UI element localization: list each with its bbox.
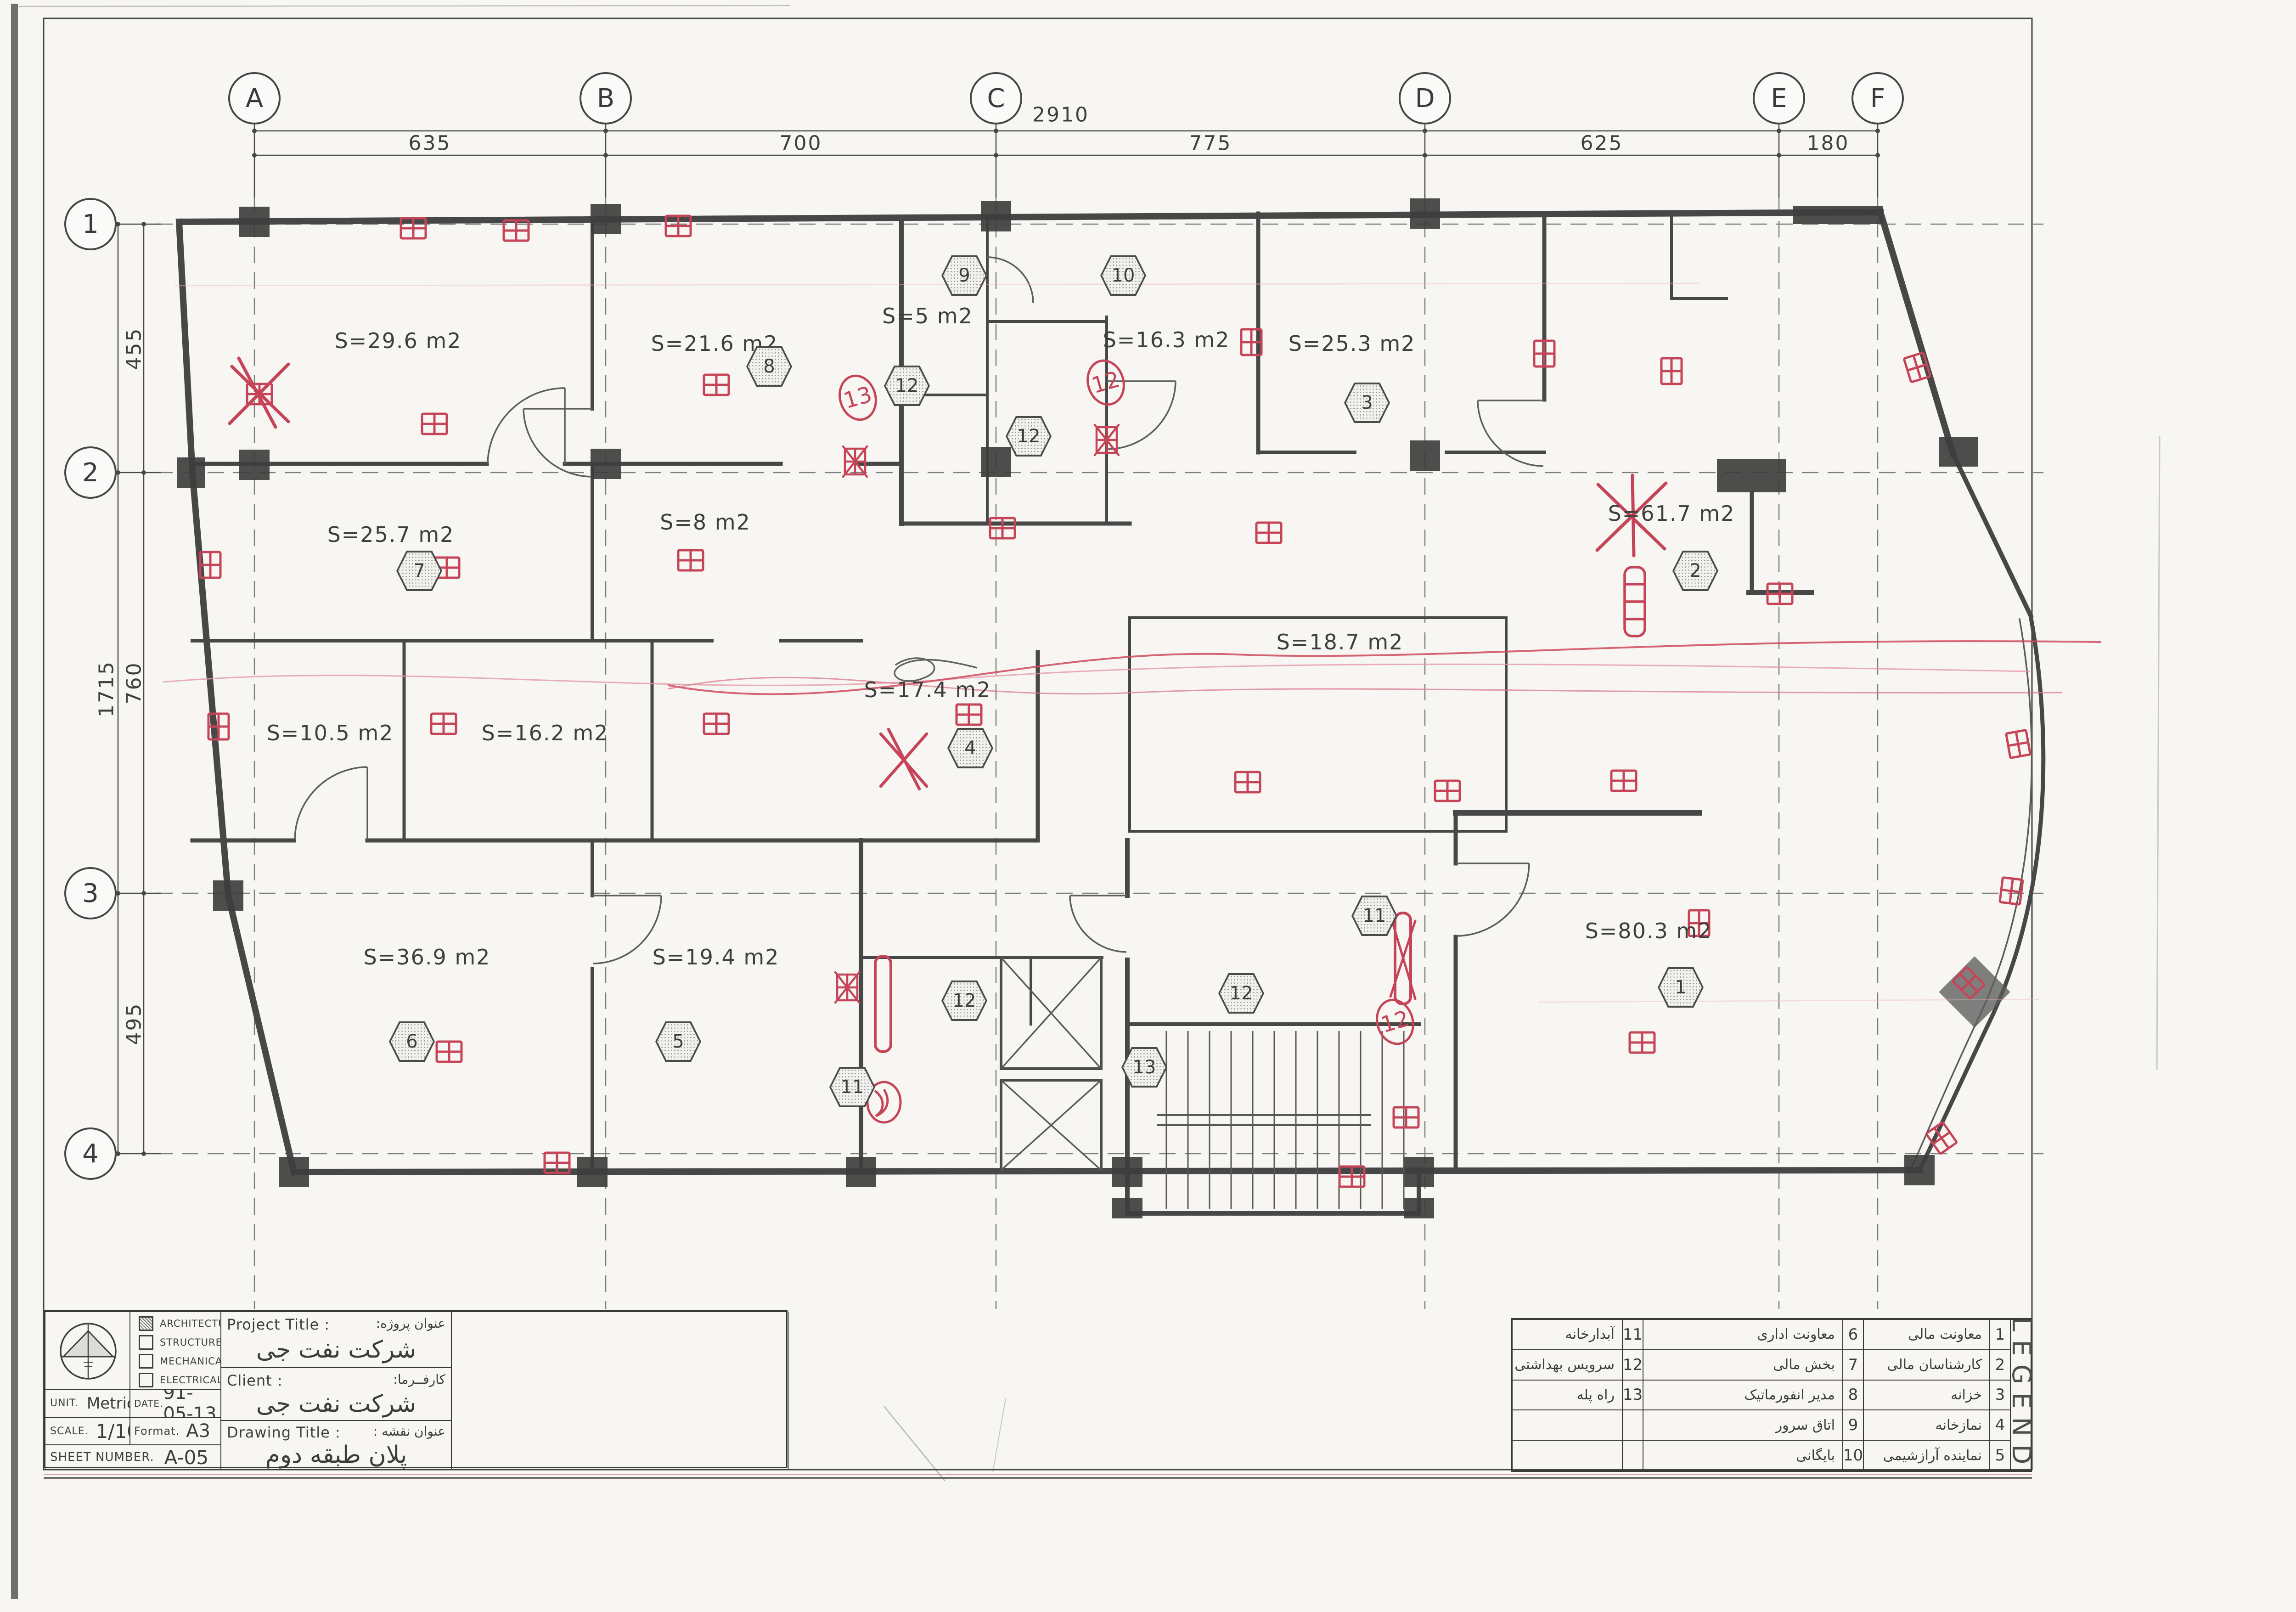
legend-entry-name: کارشناسان مالی [1863,1350,1990,1380]
room-area-label: S=17.4 m2 [864,677,991,702]
legend-entry-name [1512,1440,1622,1471]
legend-entry-number: 2 [1990,1350,2010,1380]
firm-logo [54,1317,123,1386]
architecture-checkbox [139,1316,153,1331]
room-number-hex: 8 [746,346,792,387]
red-window-mark [1235,772,1260,792]
drawing-title-label: Drawing Title : [227,1424,341,1441]
room-number-hex: 11 [829,1067,875,1107]
row-grid-bubble: 4 [64,1127,117,1180]
legend-entry-number: 3 [1990,1380,2010,1410]
column-grid-bubble: E [1753,72,1805,124]
dimension-label: 495 [123,1003,146,1045]
legend-entry-number: 9 [1843,1410,1863,1440]
date-label: DATE. [134,1398,163,1409]
red-window-mark [2000,878,2023,905]
client-value: شرکت نفت جی [221,1390,451,1418]
legend-entry-number: 1 [1990,1319,2010,1350]
red-door-bar-mark [875,956,891,1052]
red-window-mark [704,375,729,395]
red-window-mark [1630,1032,1654,1053]
red-crossed-door-mark [843,446,867,477]
unit-value: Metric [87,1394,130,1413]
structure-checkbox [139,1335,153,1350]
room-number-hex: 7 [396,551,442,591]
door-arcs [295,257,1544,964]
unit-cell: UNIT. Metric [45,1389,130,1417]
title-block: ARCHITECTURE STRUCTURE MECHANICAL ELECTR… [44,1310,788,1468]
room-area-label: S=5 m2 [882,304,973,328]
red-window-mark [704,714,729,734]
dimension-label-overall-height: 1715 [95,660,118,717]
legend-title: LEGEND [2010,1319,2032,1471]
dimension-label: 635 [409,132,451,155]
room-area-label: S=80.3 m2 [1585,919,1712,943]
date-cell: DATE. 91-05-13 [130,1389,221,1417]
legend-entry-number [1622,1440,1643,1471]
room-number-hex: 12 [884,366,930,406]
firm-logo-cell [45,1312,130,1389]
scale-value: 1/100 [96,1420,130,1443]
red-window-mark [957,705,981,725]
client-label: Client : [227,1372,283,1389]
room-area-label: S=25.7 m2 [327,522,455,547]
legend-entry-name: معاونت مالی [1863,1319,1990,1350]
format-cell: Format. A3 [130,1417,221,1445]
column-grid-bubble: F [1851,72,1904,124]
room-number-hex: 5 [655,1021,701,1062]
legend-entry-number: 11 [1622,1319,1643,1350]
legend-entry-name: مدیر انفورماتیک [1643,1380,1843,1410]
room-number-hex: 12 [1218,973,1264,1014]
legend-entry-name: راه پله [1512,1380,1622,1410]
unit-label: UNIT. [50,1398,79,1409]
legend-entry-number: 8 [1843,1380,1863,1410]
client-cell: Client : کارفــرما: شرکت نفت جی [221,1368,451,1420]
room-number-hex: 10 [1100,255,1146,296]
column-grid-bubble: B [580,72,632,124]
discipline-label: MECHANICAL [160,1356,221,1367]
discipline-checklist: ARCHITECTURE STRUCTURE MECHANICAL ELECTR… [130,1312,221,1389]
room-number-hex: 1 [1658,967,1704,1008]
red-x-mark [881,729,927,789]
drawing-title-cell: Drawing Title : عنوان نقشه : پلان طبقه د… [221,1420,451,1470]
red-window-mark [1435,781,1460,801]
scanned-floor-plan-sheet: { "title_block": { "project_title_label"… [0,0,2296,1612]
column-grid-bubble: D [1399,72,1451,124]
legend-entry-number: 12 [1622,1350,1643,1380]
sheet-number-cell: SHEET NUMBER. A-05 [45,1445,221,1470]
room-area-label: S=10.5 m2 [267,721,394,745]
room-number-hex: 4 [947,728,993,768]
room-number-hex: 11 [1351,896,1397,936]
room-area-label: S=19.4 m2 [653,945,780,969]
dimension-label: 455 [123,327,146,370]
red-window-mark [990,518,1015,538]
red-window-mark [1767,584,1792,604]
red-window-mark [2006,730,2031,758]
legend-entry-name: بخش مالی [1643,1350,1843,1380]
red-window-mark [1534,341,1554,366]
legend-entry-name: نماینده آرازشیمی [1863,1440,1990,1471]
legend-table: LEGEND آبدارخانه 11 معاونت اداری 6 معاون… [1511,1318,2032,1472]
legend-entry-name: خزانه [1863,1380,1990,1410]
room-area-label: S=16.2 m2 [482,721,609,745]
red-window-mark [1394,1107,1418,1127]
dimension-label-overall-width: 2910 [1032,103,1089,127]
legend-entry-name: نمازخانه [1863,1410,1990,1440]
drawing-title-fa-label: عنوان نقشه : [373,1424,445,1439]
scale-cell: SCALE. 1/100 [45,1417,130,1445]
dimension-label: 625 [1581,132,1623,155]
format-label: Format. [134,1425,180,1437]
elevator-shafts [1001,958,1101,1170]
red-crossed-door-mark [1095,425,1119,455]
discipline-label: ELECTRICAL [160,1375,221,1386]
column-grid-bubble: A [228,72,281,124]
red-window-mark [678,550,703,570]
red-window-mark [422,414,447,434]
red-x-mark [230,358,288,427]
room-area-label: S=16.3 m2 [1103,327,1230,352]
dimension-label: 760 [123,662,146,705]
room-area-label: S=36.9 m2 [364,945,491,969]
room-number-hex: 12 [1006,416,1052,457]
drawing-title-value: پلان طبقه دوم [221,1441,451,1469]
sheet-number-label: SHEET NUMBER. [50,1450,154,1464]
discipline-label: ARCHITECTURE [160,1318,221,1329]
red-window-mark [1611,771,1636,791]
room-number-hex: 9 [941,255,987,296]
stamp-cell [451,1312,789,1470]
project-title-value: شرکت نفت جی [221,1336,451,1364]
legend-entry-number: 4 [1990,1410,2010,1440]
red-ladder-mark [1625,567,1645,636]
project-title-label: Project Title : [227,1316,330,1333]
stair-block [1157,1031,1404,1209]
room-area-label: S=25.3 m2 [1289,331,1416,356]
electrical-checkbox [139,1373,153,1387]
legend-entry-number [1622,1410,1643,1440]
row-grid-bubble: 1 [64,198,117,250]
room-number-hex: 6 [389,1021,435,1062]
dimension-label: 775 [1189,132,1232,155]
room-area-label: S=8 m2 [660,510,751,535]
project-title-fa-label: عنوان پروژه: [376,1316,445,1331]
legend-entry-name: معاونت اداری [1643,1319,1843,1350]
scale-label: SCALE. [50,1426,89,1437]
legend-entry-name [1512,1410,1622,1440]
room-area-label: S=61.7 m2 [1608,501,1735,526]
legend-entry-number: 13 [1622,1380,1643,1410]
room-area-label: S=29.6 m2 [335,328,462,353]
legend-entry-number: 5 [1990,1440,2010,1471]
mechanical-checkbox [139,1354,153,1369]
legend-entry-number: 6 [1843,1319,1863,1350]
date-value: 91-05-13 [163,1389,220,1417]
legend-entry-name: بایگانی [1643,1440,1843,1471]
room-number-hex: 12 [941,981,987,1021]
room-number-hex: 13 [1121,1047,1167,1088]
format-value: A3 [186,1420,210,1442]
sheet-number-value: A-05 [164,1446,208,1469]
client-fa-label: کارفــرما: [393,1372,445,1387]
row-grid-bubble: 3 [64,867,117,919]
dimension-label: 180 [1807,132,1850,155]
red-window-mark [504,220,529,241]
dimension-label: 700 [780,132,822,155]
legend-entry-name: سرویس بهداشتی [1512,1350,1622,1380]
legend-entry-number: 7 [1843,1350,1863,1380]
red-annotations-layer [163,216,2101,1187]
room-area-label: S=18.7 m2 [1277,630,1404,654]
room-number-hex: 3 [1344,383,1390,423]
legend-entry-name: اتاق سرور [1643,1410,1843,1440]
red-crossed-door-mark [835,972,859,1003]
discipline-label: STRUCTURE [160,1337,221,1348]
legend-entry-number: 10 [1843,1440,1863,1471]
project-title-cell: Project Title : عنوان پروژه: شرکت نفت جی [221,1312,451,1368]
row-grid-bubble: 2 [64,446,117,499]
legend-entry-name: آبدارخانه [1512,1319,1622,1350]
column-grid-bubble: C [970,72,1022,124]
red-window-mark [431,714,456,734]
red-window-mark [1256,523,1281,543]
room-number-hex: 2 [1672,551,1718,591]
red-window-mark [437,1042,461,1062]
red-window-mark [1661,358,1682,384]
